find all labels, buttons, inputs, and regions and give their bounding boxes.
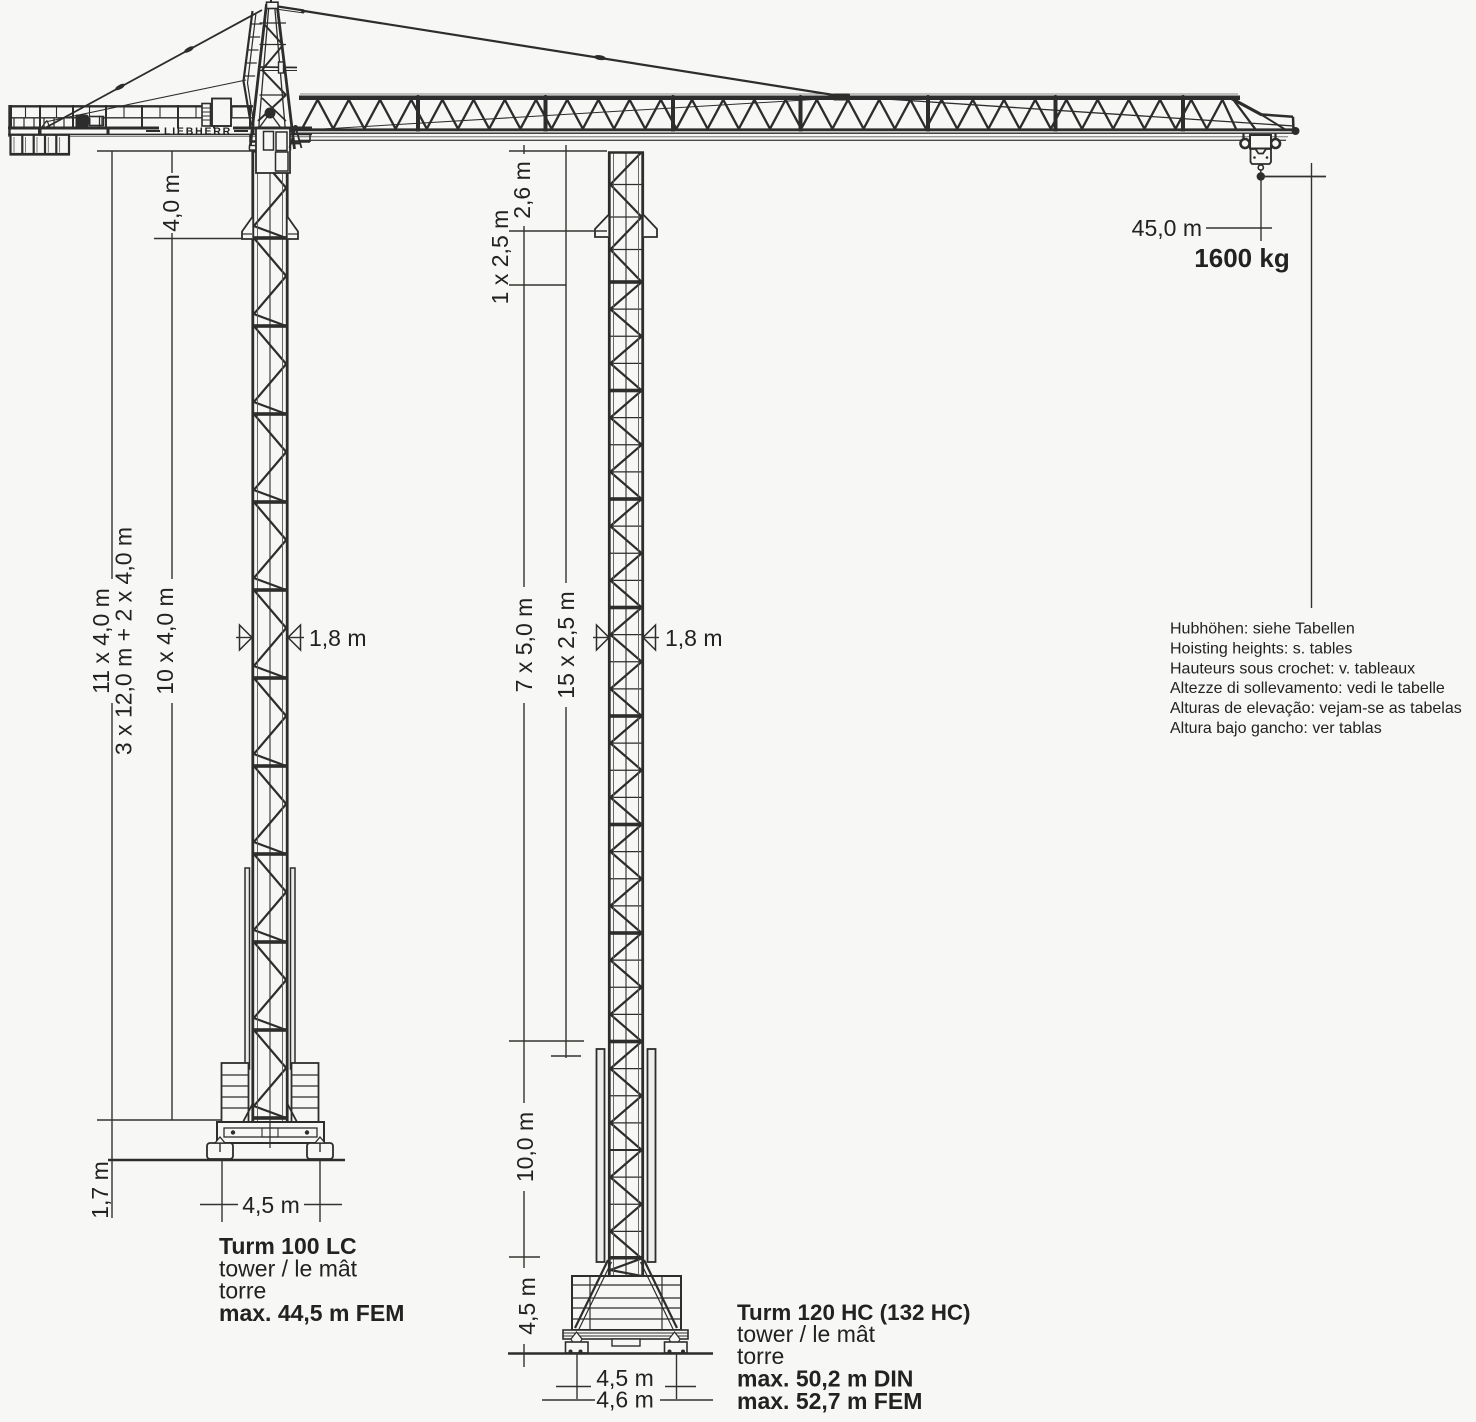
svg-text:1600 kg: 1600 kg [1194,243,1289,273]
svg-text:Hoisting heights: s. tables: Hoisting heights: s. tables [1170,640,1352,657]
svg-text:max. 52,7 m FEM: max. 52,7 m FEM [737,1388,922,1414]
svg-text:1,8 m: 1,8 m [665,625,723,651]
svg-text:LIEBHERR: LIEBHERR [164,126,232,138]
svg-text:15 x 2,5 m: 15 x 2,5 m [553,591,579,698]
svg-text:1,8 m: 1,8 m [309,625,367,651]
svg-text:max. 44,5 m FEM: max. 44,5 m FEM [219,1300,404,1326]
svg-text:Hubhöhen: siehe Tabellen: Hubhöhen: siehe Tabellen [1170,621,1355,638]
svg-text:1,7 m: 1,7 m [87,1161,113,1219]
svg-text:Alturas de elevação: vejam-se: Alturas de elevação: vejam-se as tabelas [1170,700,1462,717]
svg-text:3 x 12,0 m + 2 x 4,0 m: 3 x 12,0 m + 2 x 4,0 m [111,527,137,755]
svg-text:1 x 2,5 m: 1 x 2,5 m [487,210,513,305]
svg-text:7 x 5,0 m: 7 x 5,0 m [511,598,537,693]
svg-text:4,5 m: 4,5 m [242,1192,300,1218]
svg-text:45,0 m: 45,0 m [1132,215,1202,241]
svg-text:10 x 4,0 m: 10 x 4,0 m [152,587,178,694]
svg-text:4,5 m: 4,5 m [514,1277,540,1335]
svg-text:4,0 m: 4,0 m [158,174,184,232]
svg-text:4,6 m: 4,6 m [596,1387,654,1413]
svg-text:10,0 m: 10,0 m [512,1112,538,1182]
svg-text:Altezze di sollevamento: vedi: Altezze di sollevamento: vedi le tabelle [1170,680,1445,697]
svg-text:Altura bajo gancho: ver tablas: Altura bajo gancho: ver tablas [1170,720,1382,737]
svg-text:Hauteurs sous crochet: v. tabl: Hauteurs sous crochet: v. tableaux [1170,660,1415,677]
